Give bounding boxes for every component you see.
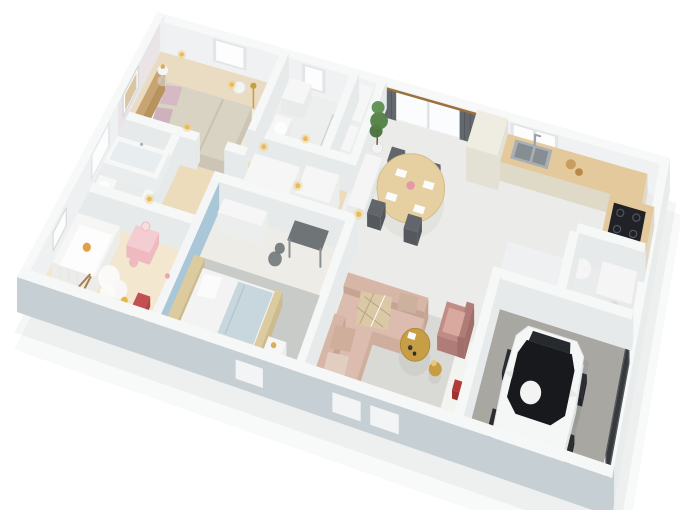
coffee-table [400, 328, 429, 361]
ceiling-light [185, 125, 190, 130]
counter-bread [575, 168, 583, 176]
ceiling-light [295, 183, 300, 188]
wall-master-east-south-face [247, 129, 255, 160]
tub-faucet [140, 143, 143, 146]
ceiling-light [147, 196, 152, 201]
ceiling-light [179, 52, 184, 56]
kids-nightstand-lamp [271, 342, 276, 348]
coffee-table-decor [408, 345, 413, 350]
sofa-plaid-throw [356, 291, 393, 330]
desk-chair-back [275, 243, 285, 254]
floor-plan-svg [0, 0, 680, 510]
car-sunshade [520, 381, 541, 405]
nursery-toy-pink [165, 273, 170, 279]
plant-foliage [372, 101, 385, 114]
nursery-stool [129, 257, 138, 267]
plant-foliage [370, 112, 388, 130]
crib-teddy [83, 243, 91, 252]
floor-lamp [250, 83, 256, 89]
nightstand-shadow [158, 76, 169, 87]
gold-sphere-lamp-highlight [431, 360, 437, 366]
table-flowers [406, 181, 414, 190]
armchair-back-south-face [457, 336, 464, 360]
toilet-seat [274, 122, 287, 135]
ceiling-light [261, 144, 266, 149]
vanity-mirror [142, 222, 150, 231]
ceiling-light [303, 136, 308, 141]
floor-plan-render [0, 0, 680, 510]
coffee-table-decor [413, 352, 417, 356]
nightstand-lamp [161, 64, 166, 69]
ceiling-light [356, 212, 361, 217]
ceiling-light [230, 82, 235, 87]
counter-bread [566, 159, 576, 169]
